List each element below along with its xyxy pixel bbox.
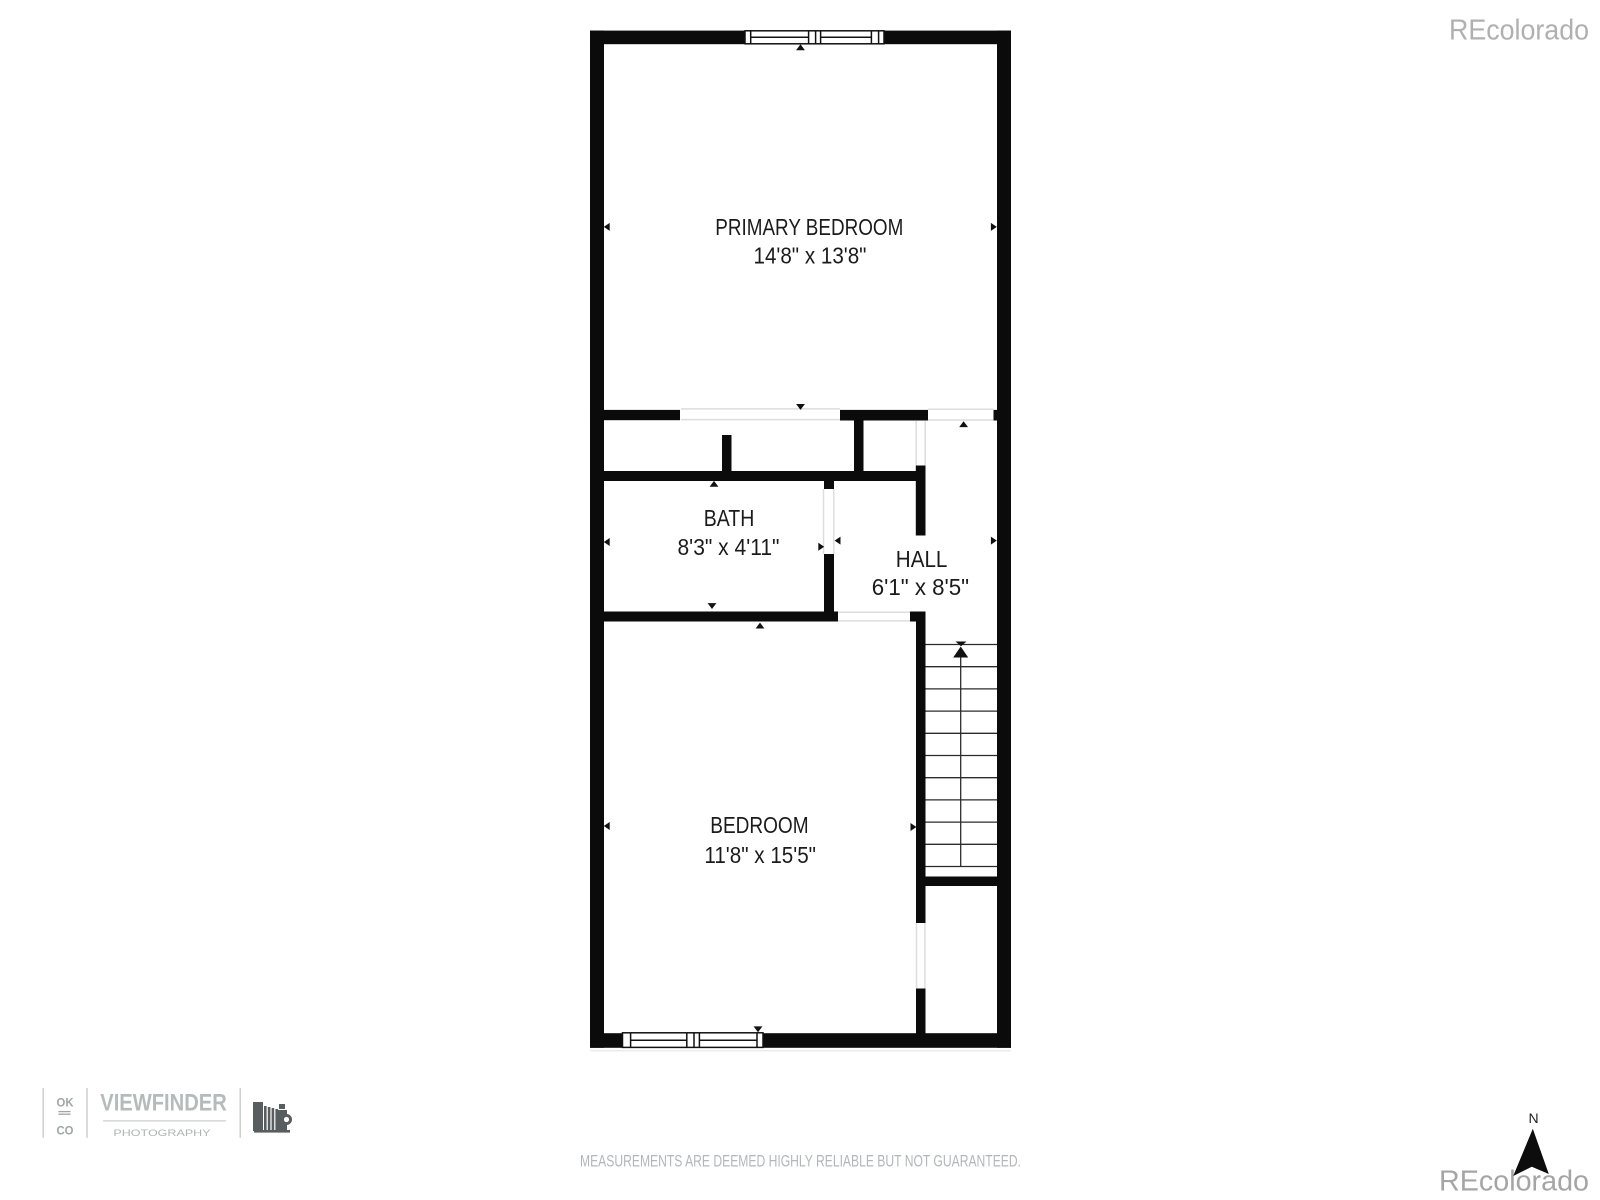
svg-text:VIEWFINDER: VIEWFINDER xyxy=(100,1090,227,1117)
svg-text:6'1" x 8'5": 6'1" x 8'5" xyxy=(872,574,969,600)
svg-text:14'8" x 13'8": 14'8" x 13'8" xyxy=(754,243,867,269)
svg-text:N: N xyxy=(1528,1110,1538,1126)
svg-text:8'3" x 4'11": 8'3" x 4'11" xyxy=(678,534,780,560)
svg-text:HALL: HALL xyxy=(896,546,948,572)
svg-text:REcolorado: REcolorado xyxy=(1449,15,1589,47)
svg-text:PRIMARY BEDROOM: PRIMARY BEDROOM xyxy=(715,214,903,240)
svg-text:OK: OK xyxy=(57,1095,74,1109)
svg-text:REcolorado: REcolorado xyxy=(1439,1166,1589,1198)
svg-text:BEDROOM: BEDROOM xyxy=(710,812,808,838)
svg-text:MEASUREMENTS ARE DEEMED HIGHLY: MEASUREMENTS ARE DEEMED HIGHLY RELIABLE … xyxy=(580,1153,1021,1171)
svg-text:PHOTOGRAPHY: PHOTOGRAPHY xyxy=(113,1128,210,1138)
svg-text:BATH: BATH xyxy=(704,505,755,531)
svg-text:CO: CO xyxy=(57,1123,74,1137)
svg-text:11'8" x 15'5": 11'8" x 15'5" xyxy=(704,842,816,868)
